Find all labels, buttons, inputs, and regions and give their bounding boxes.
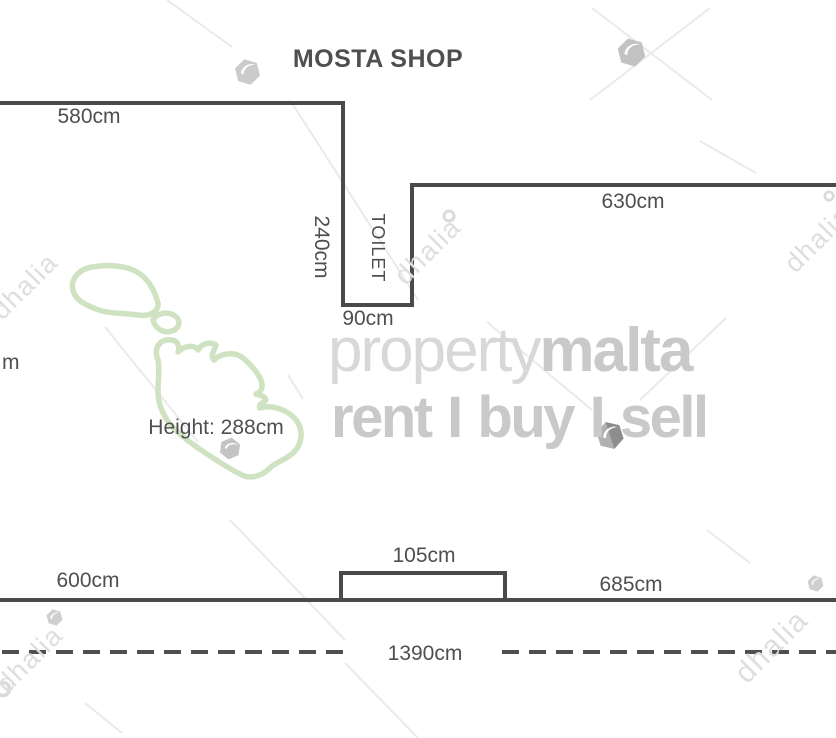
toilet-room-label: TOILET bbox=[367, 198, 389, 298]
dimension-label-top-right-wall: 630cm bbox=[583, 191, 683, 213]
height-note-label: Height: 288cm bbox=[116, 417, 316, 439]
gozo-outline bbox=[72, 266, 158, 316]
dhalia-cube-icon bbox=[232, 57, 263, 87]
dimension-label-bottom-left-wall: 600cm bbox=[38, 570, 138, 592]
wall-recess-box bbox=[341, 573, 505, 600]
dhalia-ring-icon bbox=[823, 190, 835, 202]
brand-bold-text: malta bbox=[539, 316, 691, 385]
dimension-label-top-left-wall: 580cm bbox=[39, 106, 139, 128]
dhalia-cube-icon bbox=[806, 574, 825, 593]
dimension-label-bottom-right-wall: 685cm bbox=[581, 574, 681, 596]
comino-outline bbox=[153, 313, 179, 332]
dimension-label-recess-width: 105cm bbox=[374, 545, 474, 567]
malta-islands-watermark bbox=[72, 266, 301, 477]
plan-title: MOSTA SHOP bbox=[276, 45, 480, 74]
dimension-label-left-edge-partial: m bbox=[2, 352, 20, 374]
brand-tagline-watermark: rent I buy I sell bbox=[331, 389, 707, 447]
dimension-label-total-frontage: 1390cm bbox=[350, 643, 500, 665]
dhalia-cube-icon bbox=[214, 436, 246, 461]
floor-plan-page: dhalia dhalia dhalia dhalia dhalia prope… bbox=[0, 0, 836, 738]
dimension-label-toilet-depth: 240cm bbox=[310, 197, 332, 297]
dimension-label-toilet-width: 90cm bbox=[318, 308, 418, 330]
dhalia-cube-icon bbox=[615, 36, 648, 69]
